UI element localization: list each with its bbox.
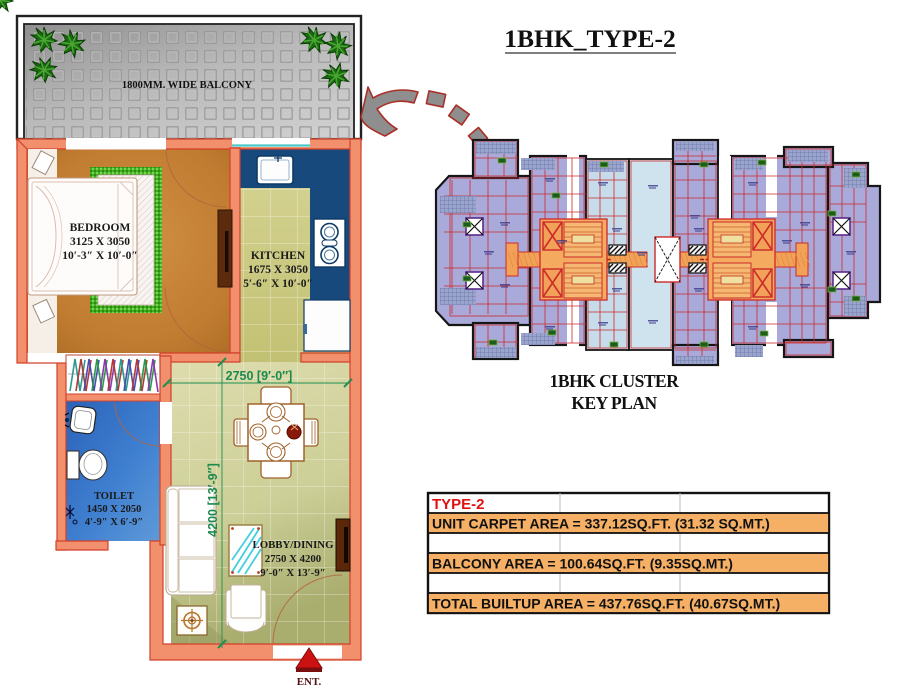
svg-text:LOBBY/DINING: LOBBY/DINING [253,539,335,551]
svg-text:UNIT CARPET AREA = 337.12SQ.FT: UNIT CARPET AREA = 337.12SQ.FT. (31.32 S… [432,516,770,532]
svg-text:TOTAL BUILTUP AREA = 437.76SQ.: TOTAL BUILTUP AREA = 437.76SQ.FT. (40.67… [432,596,780,612]
svg-text:1675 X 3050: 1675 X 3050 [248,264,308,276]
svg-text:BEDROOM: BEDROOM [70,222,131,234]
svg-text:1BHK CLUSTER: 1BHK CLUSTER [550,371,680,391]
svg-text:9′-0″ X 13′-9″: 9′-0″ X 13′-9″ [260,567,325,579]
svg-text:1800MM. WIDE BALCONY: 1800MM. WIDE BALCONY [122,80,253,91]
svg-text:KITCHEN: KITCHEN [251,250,306,262]
svg-text:4200 [13′-9″]: 4200 [13′-9″] [206,463,220,537]
svg-text:3125 X 3050: 3125 X 3050 [70,236,130,248]
svg-text:KEY PLAN: KEY PLAN [571,393,657,413]
svg-text:ENT.: ENT. [297,676,322,688]
svg-text:TYPE-2: TYPE-2 [432,496,485,513]
svg-text:1BHK_TYPE-2: 1BHK_TYPE-2 [504,24,675,53]
svg-text:2750 [9′-0″]: 2750 [9′-0″] [226,369,293,383]
svg-text:TOILET: TOILET [94,491,134,502]
svg-text:1450 X 2050: 1450 X 2050 [87,504,142,515]
svg-text:BALCONY AREA = 100.64SQ.FT. (9: BALCONY AREA = 100.64SQ.FT. (9.35SQ.MT.) [432,556,733,572]
svg-text:10′-3″ X 10′-0″: 10′-3″ X 10′-0″ [62,250,137,262]
svg-text:4′-9″ X 6′-9″: 4′-9″ X 6′-9″ [85,517,143,528]
svg-text:2750 X 4200: 2750 X 4200 [265,553,321,565]
svg-text:5′-6″ X 10′-0″: 5′-6″ X 10′-0″ [243,278,313,290]
